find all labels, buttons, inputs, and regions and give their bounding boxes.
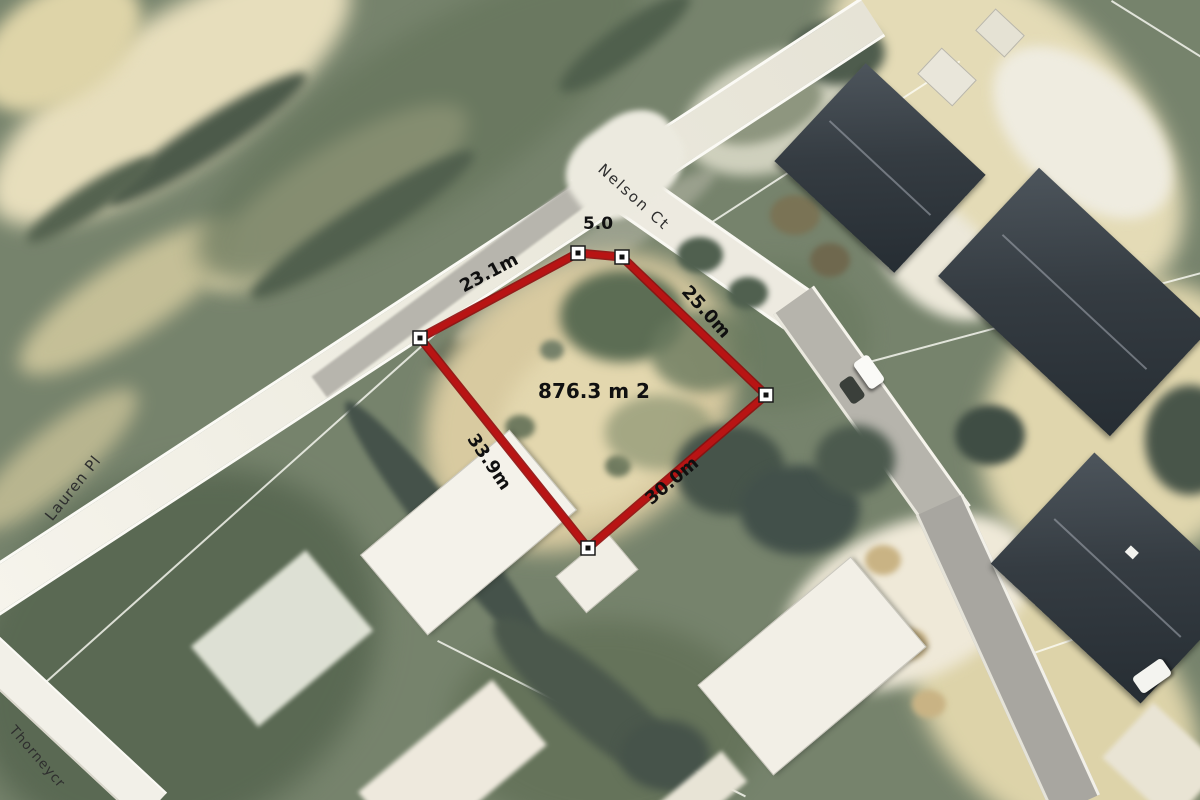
side-label-top: 5.0 [583, 214, 613, 234]
aerial-map: 876.3 m 2 5.0 23.1m 25.0m 30.0m 33.9m Ne… [0, 0, 1200, 800]
vertex-marker [581, 541, 595, 555]
vertex-marker [413, 331, 427, 345]
vertex-marker [759, 388, 773, 402]
vertex-marker [615, 250, 629, 264]
vertex-marker [571, 246, 585, 260]
parcel-area-label: 876.3 m 2 [538, 379, 650, 403]
